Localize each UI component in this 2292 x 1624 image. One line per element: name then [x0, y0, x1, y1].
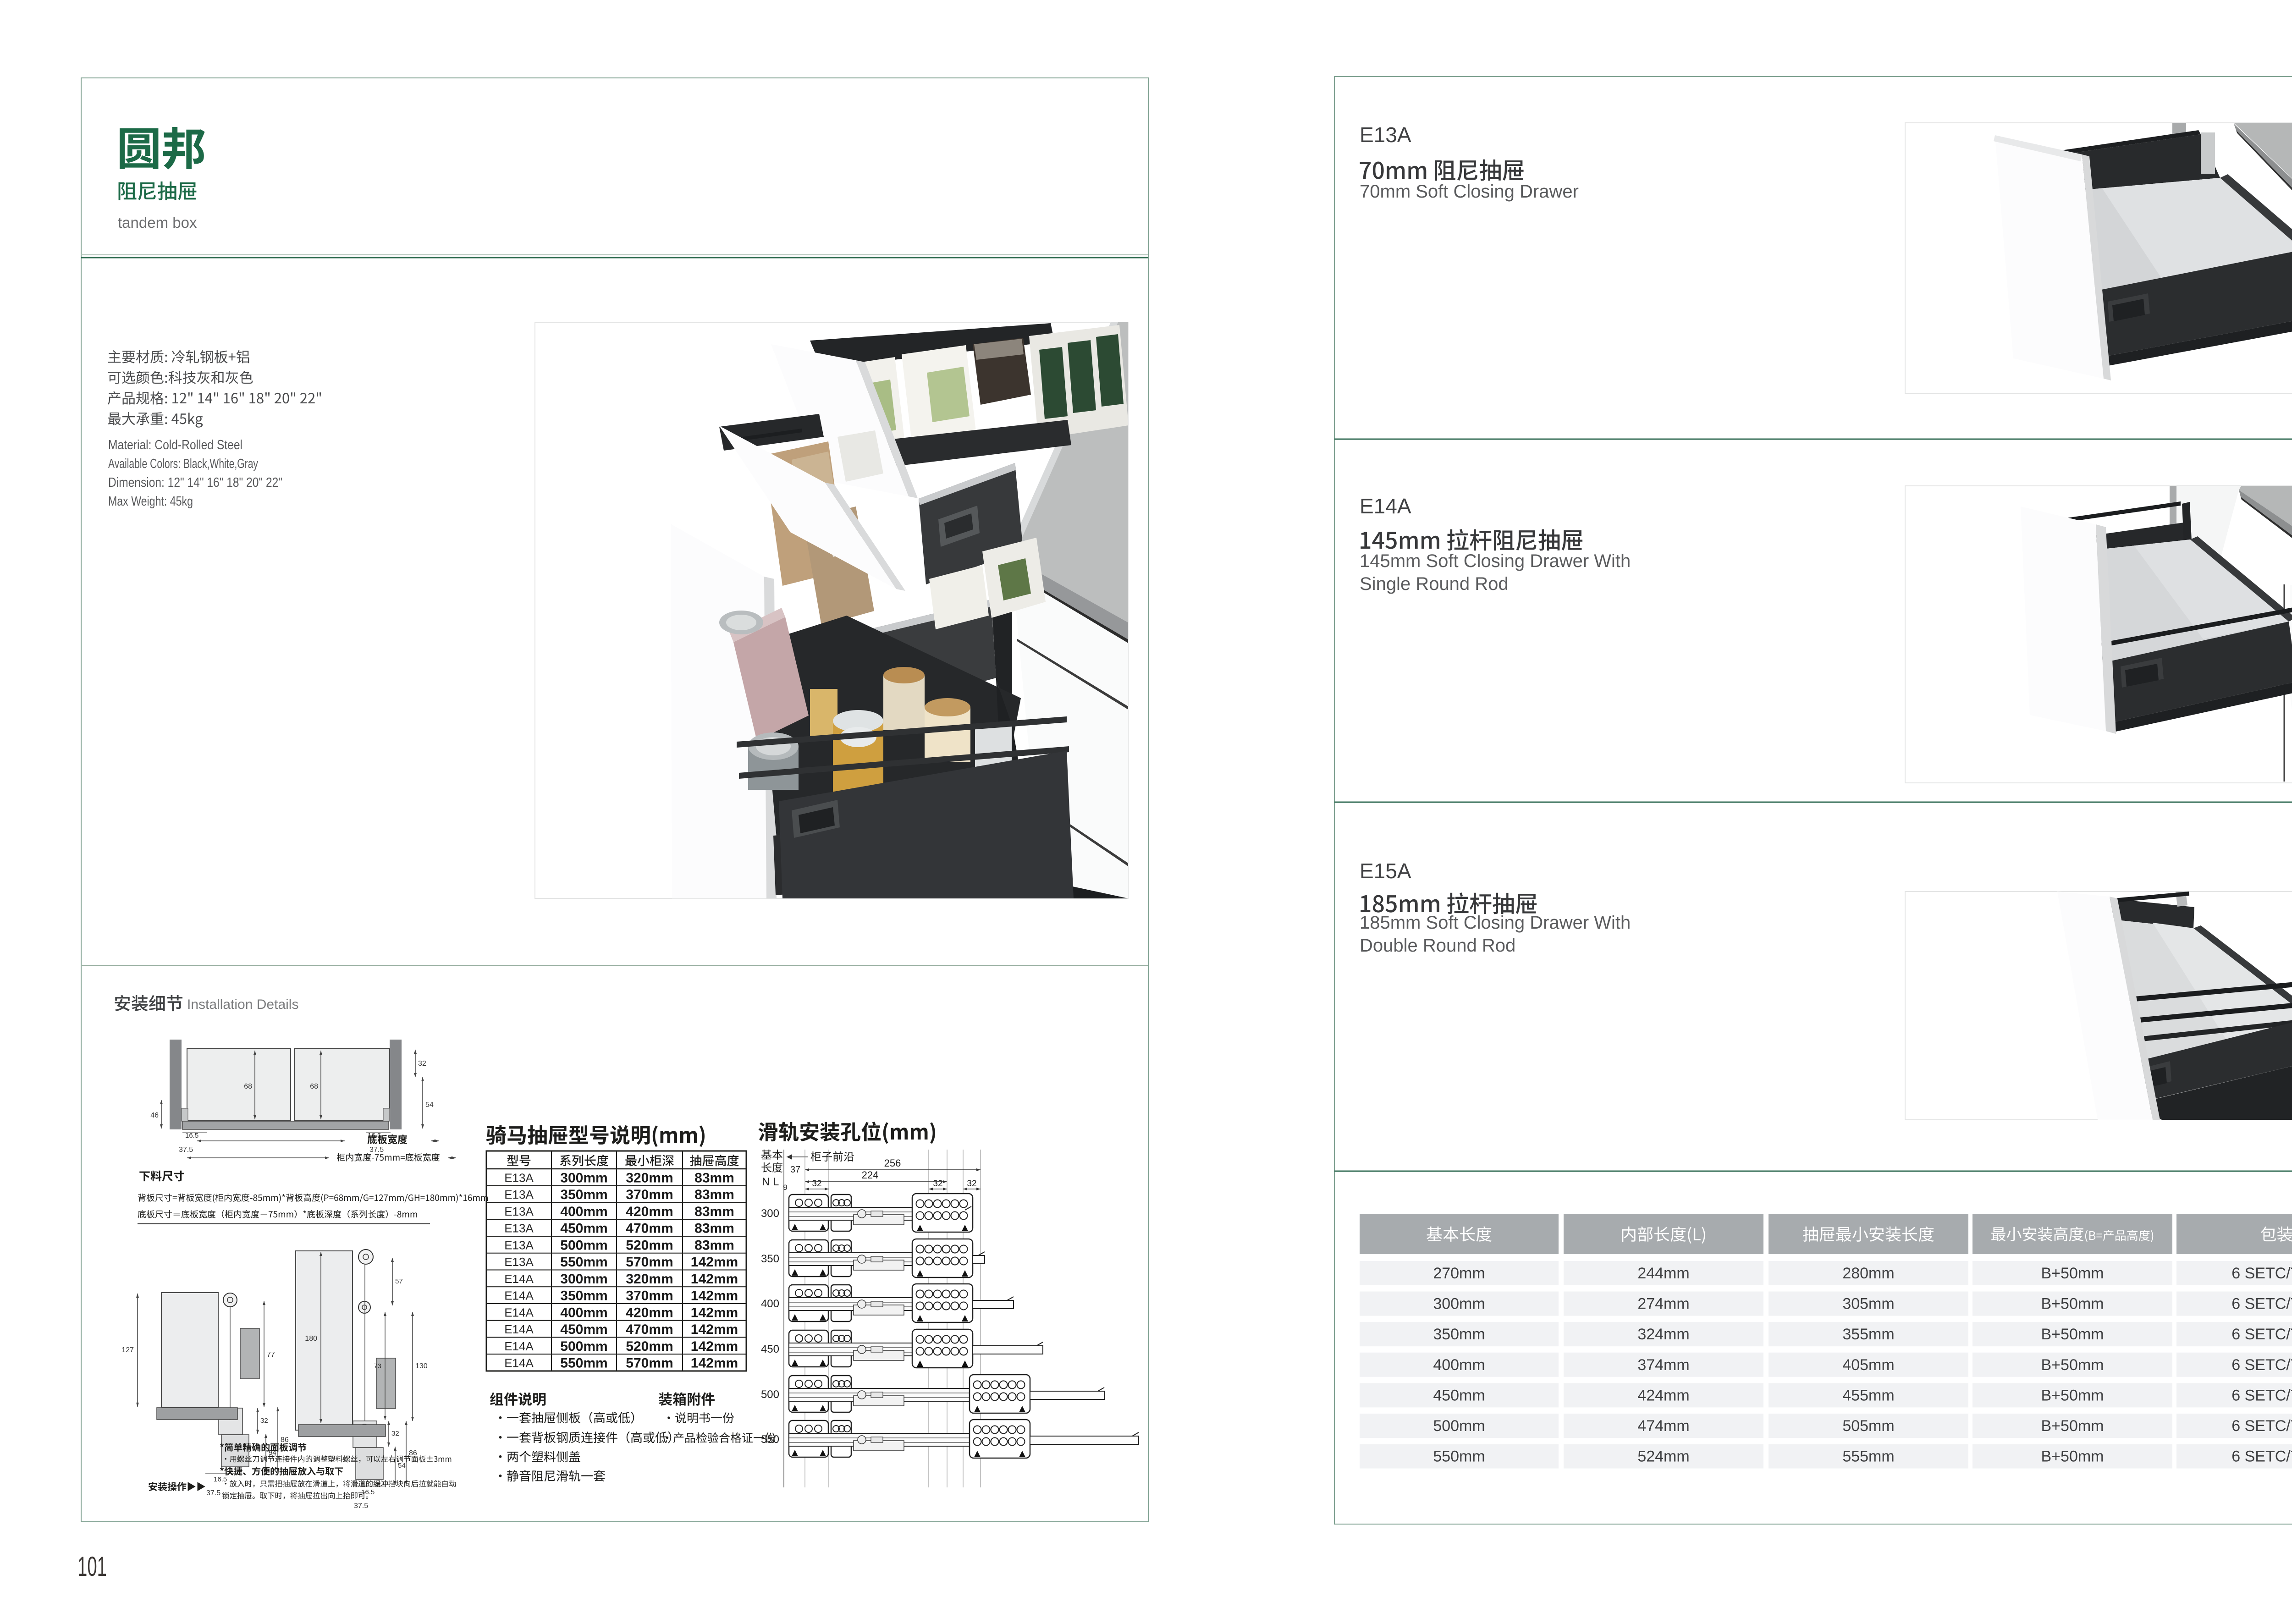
- svg-text:374mm: 374mm: [1637, 1356, 1689, 1374]
- svg-text:450mm: 450mm: [560, 1322, 607, 1337]
- svg-text:B+50mm: B+50mm: [2041, 1295, 2104, 1313]
- svg-text:54: 54: [425, 1101, 434, 1109]
- svg-text:32: 32: [967, 1179, 976, 1189]
- svg-text:550: 550: [761, 1433, 779, 1446]
- svg-text:Dimension: 12" 14" 16" 18" 20": Dimension: 12" 14" 16" 18" 20" 22": [108, 475, 282, 490]
- svg-text:350mm: 350mm: [1433, 1326, 1485, 1343]
- svg-text:E13A: E13A: [504, 1171, 534, 1184]
- svg-text:420mm: 420mm: [626, 1204, 673, 1219]
- svg-text:142mm: 142mm: [691, 1255, 738, 1270]
- svg-text:474mm: 474mm: [1637, 1417, 1689, 1435]
- svg-text:N L: N L: [762, 1176, 779, 1188]
- svg-text:142mm: 142mm: [691, 1288, 738, 1304]
- svg-text:83mm: 83mm: [694, 1238, 734, 1253]
- svg-text:E15A: E15A: [1360, 859, 1411, 883]
- svg-text:305mm: 305mm: [1842, 1295, 1894, 1313]
- svg-text:300: 300: [761, 1207, 779, 1220]
- svg-text:B+50mm: B+50mm: [2041, 1356, 2104, 1374]
- svg-text:Available Colors: Black,White,: Available Colors: Black,White,Gray: [108, 457, 258, 471]
- svg-text:400mm: 400mm: [560, 1305, 607, 1320]
- svg-text:B+50mm: B+50mm: [2041, 1417, 2104, 1435]
- svg-text:420mm: 420mm: [626, 1305, 673, 1320]
- svg-text:424mm: 424mm: [1637, 1387, 1689, 1404]
- svg-text:B+50mm: B+50mm: [2041, 1448, 2104, 1465]
- svg-text:57: 57: [395, 1277, 403, 1285]
- svg-text:Material: Cold-Rolled Steel: Material: Cold-Rolled Steel: [108, 438, 242, 452]
- svg-text:E14A: E14A: [504, 1289, 534, 1303]
- svg-text:370mm: 370mm: [626, 1187, 673, 1202]
- svg-text:400: 400: [761, 1298, 779, 1310]
- svg-text:32: 32: [933, 1179, 942, 1189]
- svg-text:E13A: E13A: [1360, 123, 1411, 147]
- svg-text:E14A: E14A: [504, 1339, 534, 1353]
- svg-text:6 SETC/TNB: 6 SETC/TNB: [2231, 1326, 2292, 1343]
- svg-text:16.5: 16.5: [361, 1488, 375, 1496]
- svg-text:570mm: 570mm: [626, 1255, 673, 1270]
- svg-text:550mm: 550mm: [1433, 1448, 1485, 1465]
- svg-text:450mm: 450mm: [1433, 1387, 1485, 1404]
- svg-text:Installation Details: Installation Details: [187, 997, 298, 1012]
- svg-text:180: 180: [305, 1335, 317, 1343]
- svg-text:E14A: E14A: [504, 1272, 534, 1286]
- svg-text:68: 68: [244, 1083, 252, 1090]
- svg-text:142mm: 142mm: [691, 1339, 738, 1354]
- svg-text:470mm: 470mm: [626, 1221, 673, 1236]
- svg-text:550mm: 550mm: [560, 1356, 607, 1371]
- svg-text:280mm: 280mm: [1842, 1265, 1894, 1282]
- svg-text:370mm: 370mm: [626, 1288, 673, 1304]
- svg-text:130: 130: [415, 1362, 428, 1370]
- svg-text:450: 450: [761, 1343, 779, 1355]
- svg-text:470mm: 470mm: [626, 1322, 673, 1337]
- svg-text:E14A: E14A: [504, 1305, 534, 1319]
- svg-text:355mm: 355mm: [1842, 1326, 1894, 1343]
- svg-text:E14A: E14A: [504, 1322, 534, 1336]
- svg-text:32: 32: [418, 1060, 426, 1068]
- svg-text:37.5: 37.5: [206, 1489, 220, 1497]
- svg-text:500: 500: [761, 1388, 779, 1401]
- svg-text:300mm: 300mm: [1433, 1295, 1485, 1313]
- svg-text:83mm: 83mm: [694, 1204, 734, 1219]
- svg-text:324mm: 324mm: [1637, 1326, 1689, 1343]
- svg-text:300mm: 300mm: [560, 1170, 607, 1185]
- svg-text:46: 46: [150, 1112, 159, 1119]
- svg-text:tandem box: tandem box: [118, 214, 197, 231]
- svg-text:455mm: 455mm: [1842, 1387, 1894, 1404]
- svg-text:83mm: 83mm: [694, 1187, 734, 1202]
- svg-text:350mm: 350mm: [560, 1187, 607, 1202]
- svg-text:37.5: 37.5: [369, 1146, 384, 1154]
- svg-text:270mm: 270mm: [1433, 1265, 1485, 1282]
- svg-text:E13A: E13A: [504, 1255, 534, 1269]
- svg-text:320mm: 320mm: [626, 1272, 673, 1287]
- svg-text:550mm: 550mm: [560, 1255, 607, 1270]
- svg-text:77: 77: [267, 1351, 275, 1359]
- svg-text:524mm: 524mm: [1637, 1448, 1689, 1465]
- svg-text:68: 68: [310, 1083, 318, 1090]
- svg-text:400mm: 400mm: [560, 1204, 607, 1219]
- svg-text:70mm Soft Closing Drawer: 70mm Soft Closing Drawer: [1360, 182, 1579, 202]
- svg-text:37.5: 37.5: [354, 1502, 368, 1510]
- svg-text:101: 101: [77, 1551, 107, 1582]
- svg-text:256: 256: [884, 1157, 901, 1169]
- svg-text:500mm: 500mm: [560, 1339, 607, 1354]
- svg-text:6 SETC/TNB: 6 SETC/TNB: [2231, 1448, 2292, 1465]
- svg-text:B+50mm: B+50mm: [2041, 1326, 2104, 1343]
- svg-text:6 SETC/TNB: 6 SETC/TNB: [2231, 1417, 2292, 1435]
- svg-text:E13A: E13A: [504, 1222, 534, 1235]
- svg-text:83mm: 83mm: [694, 1221, 734, 1236]
- svg-text:320mm: 320mm: [626, 1170, 673, 1185]
- svg-text:32: 32: [391, 1430, 399, 1437]
- svg-text:6 SETC/TNB: 6 SETC/TNB: [2231, 1387, 2292, 1404]
- svg-text:B+50mm: B+50mm: [2041, 1265, 2104, 1282]
- svg-text:16.5: 16.5: [214, 1475, 227, 1483]
- svg-text:570mm: 570mm: [626, 1356, 673, 1371]
- svg-text:16.5: 16.5: [185, 1132, 198, 1140]
- svg-text:274mm: 274mm: [1637, 1295, 1689, 1313]
- svg-text:E14A: E14A: [1360, 494, 1411, 518]
- svg-text:83mm: 83mm: [694, 1170, 734, 1185]
- svg-text:127: 127: [121, 1346, 134, 1354]
- svg-text:142mm: 142mm: [691, 1272, 738, 1287]
- svg-text:Max Weight: 45kg: Max Weight: 45kg: [108, 494, 193, 509]
- svg-text:32: 32: [812, 1179, 821, 1189]
- svg-text:E14A: E14A: [504, 1356, 534, 1370]
- svg-text:E13A: E13A: [504, 1205, 534, 1218]
- svg-text:142mm: 142mm: [691, 1356, 738, 1371]
- svg-text:350: 350: [761, 1253, 779, 1265]
- svg-text:6 SETC/TNB: 6 SETC/TNB: [2231, 1356, 2292, 1374]
- svg-text:520mm: 520mm: [626, 1238, 673, 1253]
- svg-text:505mm: 505mm: [1842, 1417, 1894, 1435]
- svg-text:Double Round Rod: Double Round Rod: [1360, 936, 1515, 956]
- svg-text:350mm: 350mm: [560, 1288, 607, 1304]
- svg-text:6 SETC/TNB: 6 SETC/TNB: [2231, 1295, 2292, 1313]
- svg-text:E13A: E13A: [504, 1238, 534, 1252]
- svg-text:520mm: 520mm: [626, 1339, 673, 1354]
- svg-text:224: 224: [862, 1169, 879, 1181]
- svg-text:37: 37: [790, 1165, 800, 1175]
- svg-text:185mm Soft Closing Drawer With: 185mm Soft Closing Drawer With: [1360, 913, 1631, 933]
- svg-text:E13A: E13A: [504, 1188, 534, 1201]
- svg-text:37.5: 37.5: [179, 1146, 193, 1154]
- svg-text:54: 54: [398, 1462, 406, 1470]
- svg-text:500mm: 500mm: [560, 1238, 607, 1253]
- svg-text:86: 86: [281, 1436, 289, 1444]
- svg-text:555mm: 555mm: [1842, 1448, 1894, 1465]
- svg-text:145mm Soft Closing Drawer With: 145mm Soft Closing Drawer With: [1360, 551, 1631, 571]
- svg-text:Single Round Rod: Single Round Rod: [1360, 574, 1509, 594]
- svg-text:9: 9: [783, 1183, 787, 1192]
- svg-text:450mm: 450mm: [560, 1221, 607, 1236]
- svg-text:405mm: 405mm: [1842, 1356, 1894, 1374]
- svg-text:142mm: 142mm: [691, 1305, 738, 1320]
- svg-text:73: 73: [374, 1362, 381, 1370]
- svg-text:B+50mm: B+50mm: [2041, 1387, 2104, 1404]
- svg-text:142mm: 142mm: [691, 1322, 738, 1337]
- svg-text:244mm: 244mm: [1637, 1265, 1689, 1282]
- svg-text:500mm: 500mm: [1433, 1417, 1485, 1435]
- svg-text:300mm: 300mm: [560, 1272, 607, 1287]
- svg-text:400mm: 400mm: [1433, 1356, 1485, 1374]
- svg-text:32: 32: [260, 1417, 268, 1425]
- svg-text:6 SETC/TNB: 6 SETC/TNB: [2231, 1265, 2292, 1282]
